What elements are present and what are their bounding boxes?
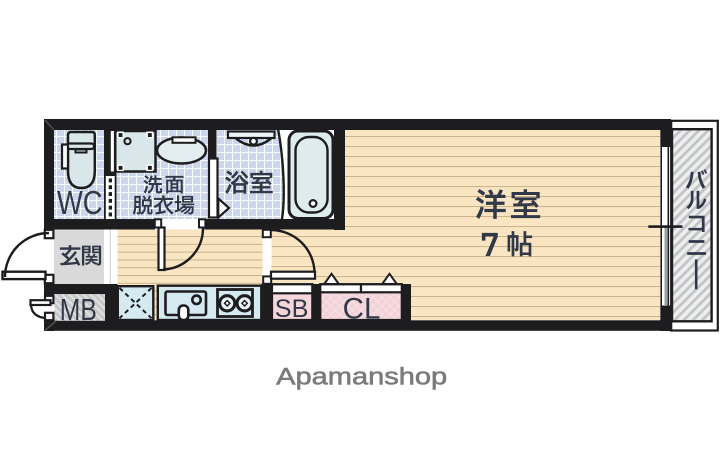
svg-text:SB: SB <box>275 295 309 323</box>
svg-text:MB: MB <box>60 293 97 327</box>
svg-text:WC: WC <box>57 185 103 222</box>
svg-text:CL: CL <box>343 293 381 326</box>
svg-text:Apamanshop: Apamanshop <box>276 364 447 391</box>
